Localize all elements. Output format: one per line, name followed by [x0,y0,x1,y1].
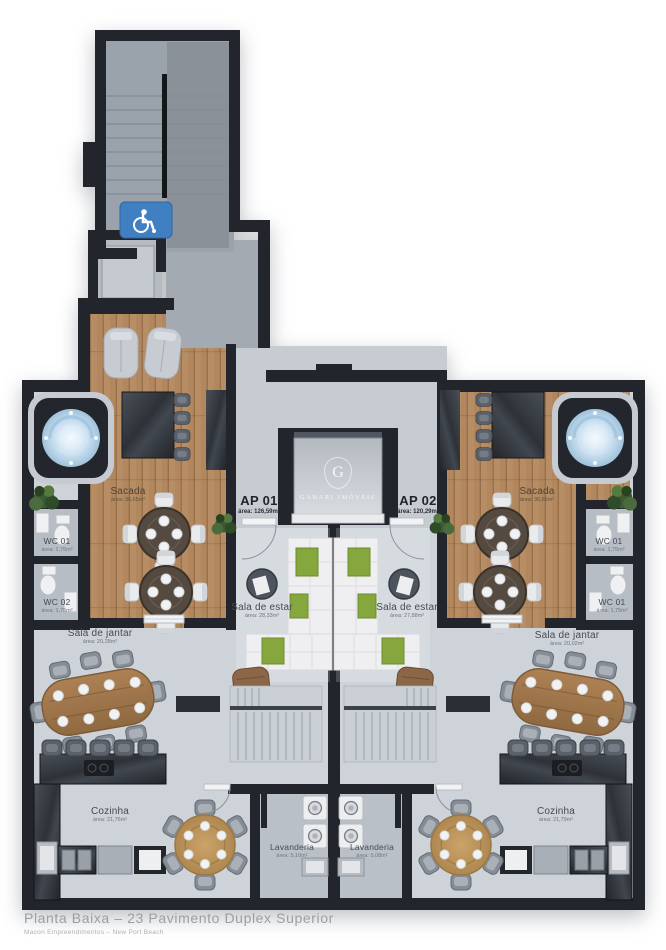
corridor-floor [166,240,260,348]
terrace-island [122,390,226,470]
jacuzzi [28,392,114,484]
wheelchair-icon [120,202,172,238]
green-cushion [296,548,318,576]
stair-divider [162,74,167,198]
floorplan-drawing [0,0,666,950]
elevator-glass [294,438,382,514]
green-cushion [290,594,308,618]
laundry-appliances [302,796,328,876]
green-cushion [262,638,284,664]
staircase [230,686,322,762]
egg-chair [247,569,277,599]
elevator-lobby [292,432,384,523]
title-block: Planta Baixa – 23 Pavimento Duplex Super… [24,910,334,936]
plan-subtitle: Macon Empreendimentos – New Port Beach [24,929,334,936]
console [176,696,220,712]
plan-title: Planta Baixa – 23 Pavimento Duplex Super… [24,910,334,926]
floorplan-page: Sacada área: 36,65m² Sacada área: 36,65m… [0,0,666,950]
